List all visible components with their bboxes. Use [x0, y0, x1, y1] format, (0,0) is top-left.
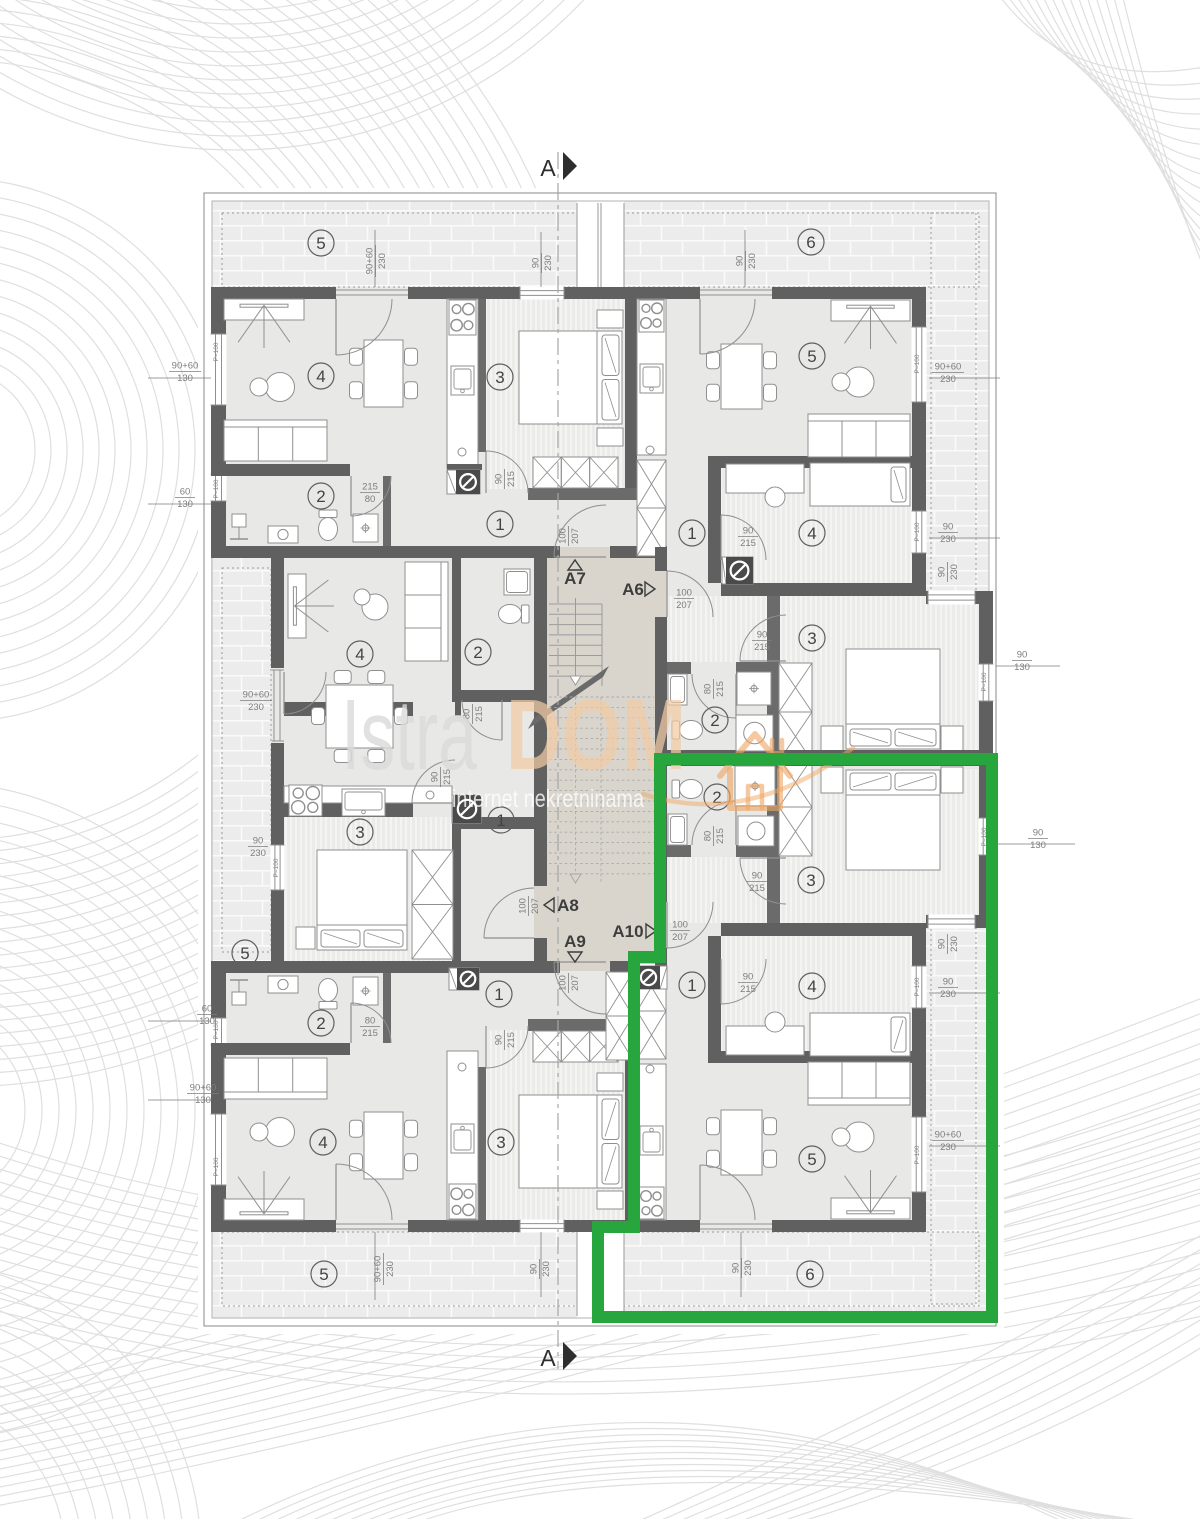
svg-text:5: 5 — [807, 347, 816, 366]
svg-text:2: 2 — [316, 1014, 325, 1033]
svg-text:90: 90 — [731, 1263, 742, 1274]
svg-text:215: 215 — [754, 642, 770, 653]
svg-text:215: 215 — [506, 471, 517, 487]
svg-text:80: 80 — [365, 494, 376, 505]
svg-text:130: 130 — [1014, 662, 1030, 673]
svg-text:3: 3 — [806, 871, 815, 890]
svg-text:5: 5 — [807, 1150, 816, 1169]
svg-text:P=100: P=100 — [213, 1157, 220, 1176]
svg-text:P=100: P=100 — [981, 672, 988, 691]
svg-text:P=100: P=100 — [213, 1020, 220, 1039]
svg-text:5: 5 — [319, 1265, 328, 1284]
svg-text:4: 4 — [807, 977, 816, 996]
svg-text:A6: A6 — [622, 580, 644, 599]
svg-text:P=100: P=100 — [914, 354, 921, 373]
svg-text:4: 4 — [355, 645, 364, 664]
svg-text:3: 3 — [807, 629, 816, 648]
svg-text:215: 215 — [362, 1028, 378, 1039]
svg-text:90: 90 — [743, 526, 754, 537]
svg-text:215: 215 — [740, 538, 756, 549]
svg-text:5: 5 — [316, 234, 325, 253]
svg-text:230: 230 — [940, 1142, 956, 1153]
svg-text:P=100: P=100 — [273, 858, 280, 877]
svg-text:90: 90 — [494, 474, 505, 485]
svg-text:A7: A7 — [564, 569, 586, 588]
svg-text:90: 90 — [531, 258, 542, 269]
svg-text:207: 207 — [530, 898, 541, 914]
svg-text:60: 60 — [180, 487, 191, 498]
svg-text:100: 100 — [672, 920, 688, 931]
svg-text:A9: A9 — [564, 932, 586, 951]
svg-text:5: 5 — [240, 944, 249, 963]
svg-text:1: 1 — [687, 524, 696, 543]
svg-text:1: 1 — [494, 985, 503, 1004]
svg-text:215: 215 — [715, 681, 726, 697]
svg-text:90: 90 — [943, 522, 954, 533]
svg-text:90: 90 — [1033, 828, 1044, 839]
svg-text:90: 90 — [1017, 650, 1028, 661]
svg-text:207: 207 — [676, 600, 692, 611]
svg-text:130: 130 — [177, 373, 193, 384]
svg-text:4: 4 — [807, 524, 816, 543]
svg-text:90+60: 90+60 — [935, 362, 962, 373]
svg-text:80: 80 — [703, 831, 714, 842]
svg-text:P=100: P=100 — [914, 977, 921, 996]
svg-text:130: 130 — [195, 1095, 211, 1106]
svg-text:130: 130 — [1030, 840, 1046, 851]
svg-text:80: 80 — [365, 1016, 376, 1027]
svg-text:2: 2 — [316, 487, 325, 506]
svg-text:90+60: 90+60 — [935, 1130, 962, 1141]
svg-text:207: 207 — [570, 975, 581, 991]
svg-text:215: 215 — [506, 1032, 517, 1048]
svg-text:90+60: 90+60 — [190, 1083, 217, 1094]
svg-text:P=100: P=100 — [914, 1145, 921, 1164]
svg-text:230: 230 — [743, 1260, 754, 1276]
svg-text:130: 130 — [177, 499, 193, 510]
svg-text:230: 230 — [940, 374, 956, 385]
svg-text:230: 230 — [248, 702, 264, 713]
svg-text:A: A — [540, 1345, 556, 1371]
svg-text:230: 230 — [940, 989, 956, 1000]
svg-text:215: 215 — [749, 883, 765, 894]
svg-text:90: 90 — [752, 871, 763, 882]
svg-text:A10: A10 — [612, 922, 643, 941]
svg-text:90: 90 — [253, 836, 264, 847]
svg-text:60: 60 — [202, 1004, 213, 1015]
svg-text:215: 215 — [715, 828, 726, 844]
svg-text:230: 230 — [949, 936, 960, 952]
svg-text:230: 230 — [377, 253, 388, 269]
svg-text:2: 2 — [710, 711, 719, 730]
svg-text:3: 3 — [496, 1133, 505, 1152]
svg-text:100: 100 — [518, 898, 529, 914]
svg-text:230: 230 — [940, 534, 956, 545]
svg-text:4: 4 — [318, 1133, 327, 1152]
svg-text:3: 3 — [355, 823, 364, 842]
svg-text:4: 4 — [316, 367, 325, 386]
svg-text:90: 90 — [743, 972, 754, 983]
svg-text:1: 1 — [495, 515, 504, 534]
svg-text:230: 230 — [385, 1261, 396, 1277]
svg-text:100: 100 — [676, 588, 692, 599]
svg-text:P=100: P=100 — [914, 522, 921, 541]
svg-text:3: 3 — [495, 368, 504, 387]
svg-text:230: 230 — [250, 848, 266, 859]
svg-text:90: 90 — [757, 630, 768, 641]
svg-text:90: 90 — [494, 1035, 505, 1046]
svg-text:Istra: Istra — [341, 679, 477, 791]
svg-text:1: 1 — [687, 976, 696, 995]
svg-text:1: 1 — [496, 811, 505, 830]
svg-text:P=100: P=100 — [213, 342, 220, 361]
svg-text:230: 230 — [543, 255, 554, 271]
svg-text:A: A — [540, 155, 556, 181]
svg-text:90: 90 — [937, 939, 948, 950]
svg-text:100: 100 — [558, 975, 569, 991]
svg-text:90+60: 90+60 — [365, 248, 376, 275]
svg-text:230: 230 — [949, 564, 960, 580]
svg-text:90+60: 90+60 — [373, 1256, 384, 1283]
svg-text:6: 6 — [806, 233, 815, 252]
svg-text:90: 90 — [937, 567, 948, 578]
svg-text:215: 215 — [740, 984, 756, 995]
svg-text:2: 2 — [473, 643, 482, 662]
svg-text:230: 230 — [747, 253, 758, 269]
svg-text:100: 100 — [558, 528, 569, 544]
svg-text:90: 90 — [943, 977, 954, 988]
svg-text:207: 207 — [672, 932, 688, 943]
svg-text:230: 230 — [541, 1261, 552, 1277]
svg-text:A8: A8 — [557, 896, 579, 915]
svg-text:90+60: 90+60 — [172, 361, 199, 372]
svg-text:90: 90 — [529, 1264, 540, 1275]
svg-text:215: 215 — [362, 482, 378, 493]
svg-text:80: 80 — [703, 684, 714, 695]
svg-text:internet nekretninama: internet nekretninama — [452, 785, 644, 813]
svg-text:90: 90 — [735, 256, 746, 267]
svg-text:P=100: P=100 — [213, 479, 220, 498]
svg-text:207: 207 — [570, 528, 581, 544]
svg-text:6: 6 — [805, 1265, 814, 1284]
svg-text:90+60: 90+60 — [243, 690, 270, 701]
